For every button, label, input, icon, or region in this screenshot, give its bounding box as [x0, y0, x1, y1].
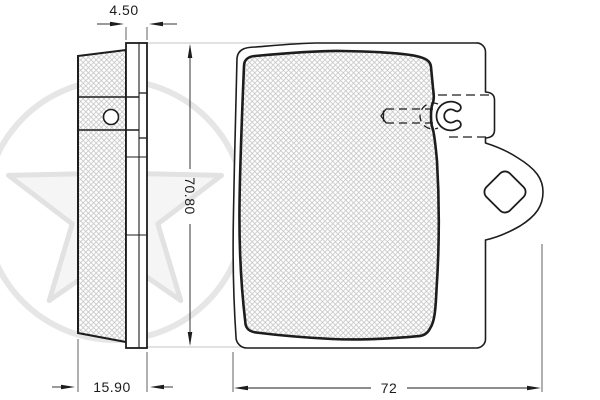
dimension-label-total-thickness: 15.90	[93, 379, 131, 395]
friction-material-side	[78, 50, 126, 342]
drawing-canvas: 4.50 15.90 70.80 72	[0, 0, 600, 400]
dimension-label-back-plate-thickness: 4.50	[109, 2, 138, 18]
dimension-label-pad-width: 72	[381, 380, 398, 396]
friction-pad-face	[239, 51, 438, 340]
dimension-label-pad-height: 70.80	[182, 177, 198, 215]
side-view	[78, 43, 147, 348]
technical-drawing: 4.50 15.90 70.80 72	[0, 0, 600, 400]
side-view-hole	[104, 110, 119, 125]
back-plate-side	[126, 43, 147, 348]
